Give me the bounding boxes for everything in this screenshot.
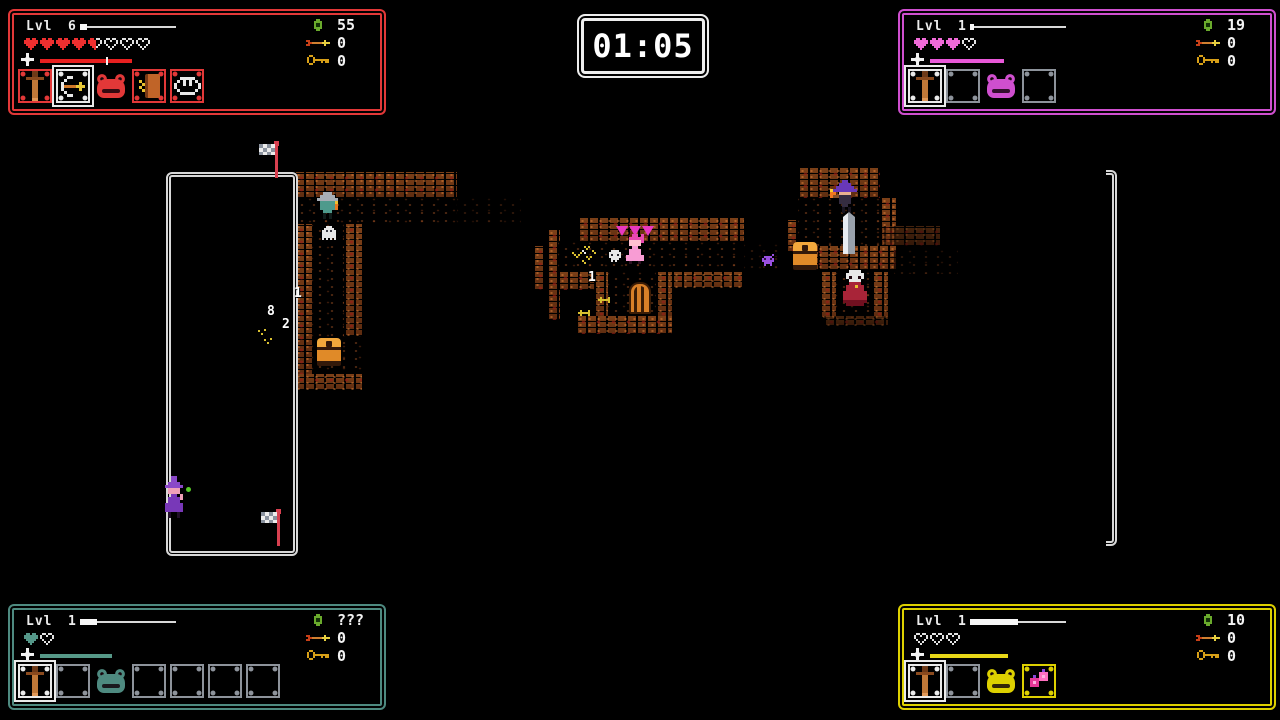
- fangs-icon: [174, 77, 201, 95]
- heart-full-icon: [56, 38, 70, 50]
- sprite-princess: [626, 234, 647, 264]
- special-bar: [40, 59, 132, 63]
- sprite-ghost: [322, 226, 336, 240]
- gem-icon: [1204, 614, 1212, 626]
- key-icon: [1197, 55, 1219, 67]
- inventory-slot[interactable]: [18, 664, 52, 698]
- game-viewport: 1821 01:05 Lvl65500 Lvl11900 Lvl1???00 L…: [0, 0, 1280, 720]
- xp-bar-fill: [80, 619, 97, 625]
- health-hearts: [24, 633, 56, 645]
- counter-value: 10: [1227, 611, 1245, 629]
- slime-icon: [96, 74, 126, 98]
- counter-value: 19: [1227, 16, 1245, 34]
- player-panel-yellow: Lvl11000: [898, 604, 1276, 710]
- level-label: Lvl: [26, 19, 52, 34]
- counter-value: ???: [337, 611, 364, 629]
- inventory-slot[interactable]: [18, 69, 52, 103]
- arrowitem-icon: [306, 38, 330, 48]
- counter-gems: ???: [304, 611, 380, 629]
- sprite-chest: [317, 338, 341, 366]
- level-value: 6: [68, 19, 76, 34]
- bow-icon: [61, 76, 85, 97]
- health-hearts: [24, 38, 152, 50]
- gem-icon-box: [1194, 19, 1222, 31]
- xp-bar-fill: [80, 24, 87, 30]
- inventory-slots: [18, 664, 280, 698]
- slime-icon: [986, 74, 1016, 98]
- player-panel-pink: Lvl11900: [898, 9, 1276, 115]
- level-label: Lvl: [26, 614, 52, 629]
- companion-slot: [984, 69, 1018, 103]
- gem-icon: [1204, 19, 1212, 31]
- map-tile-brick: [344, 224, 362, 336]
- map-tile-brick2: [824, 316, 888, 326]
- heart-full-icon: [72, 38, 86, 50]
- arrowitem-icon: [1196, 633, 1220, 643]
- berries-icon: [1027, 669, 1051, 693]
- key-icon: [307, 650, 329, 662]
- heart-empty-icon: [120, 38, 134, 50]
- heart-empty-icon: [104, 38, 118, 50]
- key-icon-box: [304, 650, 332, 662]
- arrowitem-icon-box: [304, 633, 332, 643]
- heart-empty-icon: [962, 38, 976, 50]
- gem-icon: [314, 614, 322, 626]
- damage-number: 1: [294, 286, 302, 301]
- heart-empty-icon: [914, 633, 928, 645]
- arrowitem-icon-box: [1194, 38, 1222, 48]
- companion-slot: [94, 664, 128, 698]
- map-tile-brick: [820, 272, 836, 318]
- map-tile-brick: [578, 218, 744, 242]
- sprite-bigsword: [843, 212, 855, 254]
- xp-bar: [970, 618, 1066, 626]
- counter-keys: 0: [304, 647, 380, 665]
- sprite-chest: [793, 242, 817, 270]
- level-value: 1: [958, 19, 966, 34]
- key-icon: [1197, 650, 1219, 662]
- inventory-slot[interactable]: [132, 69, 166, 103]
- map-tile-brick: [872, 272, 888, 318]
- slime-icon: [986, 669, 1016, 693]
- map-tile-brick2: [884, 226, 940, 246]
- inventory-slot[interactable]: [170, 69, 204, 103]
- counter-value: 0: [1227, 647, 1236, 665]
- sprite-witchfire: [830, 180, 860, 213]
- heart-full-icon: [946, 38, 960, 50]
- sprite-door: [629, 282, 651, 314]
- counter-keys: 0: [1194, 52, 1270, 70]
- inventory-slots: [908, 69, 1056, 103]
- counter-value: 0: [337, 34, 346, 52]
- sprite-priest: [843, 270, 867, 306]
- map-tile-floor2: [457, 198, 521, 224]
- map-tile-brick: [294, 374, 362, 390]
- sprite-witchroom: [162, 476, 186, 518]
- key-icon-box: [1194, 55, 1222, 67]
- arrowitem-icon-box: [1194, 633, 1222, 643]
- key-icon-box: [304, 55, 332, 67]
- resource-counters: 1900: [1194, 16, 1270, 70]
- inventory-slot[interactable]: [1022, 69, 1056, 103]
- counter-value: 0: [1227, 52, 1236, 70]
- sword-icon: [23, 71, 47, 101]
- health-hearts: [914, 633, 962, 645]
- gem-icon-box: [304, 19, 332, 31]
- heart-empty-icon: [930, 633, 944, 645]
- counter-value: 0: [337, 647, 346, 665]
- key-icon: [307, 55, 329, 67]
- map-tile-brick: [533, 246, 544, 290]
- heart-full-icon: [930, 38, 944, 50]
- heart-half-icon: [88, 38, 102, 50]
- inventory-slot[interactable]: [170, 664, 204, 698]
- inventory-slot[interactable]: [56, 69, 90, 103]
- right-room-wall: [1106, 170, 1117, 546]
- level-value: 1: [68, 614, 76, 629]
- damage-number: 1: [588, 270, 596, 285]
- special-bar: [40, 654, 112, 658]
- damage-number: 8: [267, 304, 275, 319]
- sword-icon: [913, 71, 937, 101]
- gem-icon: [314, 19, 322, 31]
- companion-slot: [94, 69, 128, 103]
- counter-value: 0: [337, 629, 346, 647]
- map-tile-floor2: [894, 250, 958, 274]
- player-panel-teal: Lvl1???00: [8, 604, 386, 710]
- sprite-spark: [264, 339, 266, 341]
- arrowitem-icon: [306, 633, 330, 643]
- slime-icon: [96, 669, 126, 693]
- counter-value: 0: [337, 52, 346, 70]
- counter-value: 0: [1227, 34, 1236, 52]
- counter-value: 55: [337, 16, 355, 34]
- sparkle-icon: [21, 53, 34, 66]
- heart-empty-icon: [40, 633, 54, 645]
- map-tile-brick: [656, 272, 672, 318]
- heart-full-icon: [24, 38, 38, 50]
- counter-gems: 10: [1194, 611, 1270, 629]
- gem-icon-box: [1194, 614, 1222, 626]
- counter-gems: 19: [1194, 16, 1270, 34]
- heart-full-icon: [40, 38, 54, 50]
- level-label: Lvl: [916, 614, 942, 629]
- xp-bar: [80, 618, 176, 626]
- inventory-slot[interactable]: [946, 664, 980, 698]
- book-icon: [139, 74, 160, 98]
- xp-bar-fill: [970, 619, 1018, 625]
- sprite-imp: [762, 254, 774, 266]
- timer-value: 01:05: [592, 27, 693, 65]
- health-hearts: [914, 38, 978, 50]
- xp-bar-track: [80, 26, 176, 28]
- companion-slot: [984, 664, 1018, 698]
- counter-arrows: 0: [1194, 34, 1270, 52]
- heart-empty-icon: [136, 38, 150, 50]
- map-tile-brick: [672, 272, 744, 288]
- xp-bar: [80, 23, 176, 31]
- counter-arrows: 0: [304, 34, 380, 52]
- counter-keys: 0: [1194, 647, 1270, 665]
- inventory-slot[interactable]: [1022, 664, 1056, 698]
- sprite-skull: [609, 250, 621, 262]
- resource-counters: 5500: [304, 16, 380, 70]
- heart-full-icon: [24, 633, 38, 645]
- sprite-flag: [277, 510, 280, 546]
- arrowitem-icon: [1196, 38, 1220, 48]
- inventory-slot[interactable]: [56, 664, 90, 698]
- xp-bar-fill: [970, 24, 974, 30]
- special-bar: [930, 654, 1008, 658]
- counter-arrows: 0: [1194, 629, 1270, 647]
- xp-bar-track: [970, 26, 1066, 28]
- counter-keys: 0: [304, 52, 380, 70]
- xp-bar: [970, 23, 1066, 31]
- inventory-slot[interactable]: [908, 69, 942, 103]
- resource-counters: ???00: [304, 611, 380, 665]
- match-timer: 01:05: [577, 14, 709, 78]
- inventory-slots: [908, 664, 1056, 698]
- inventory-slot[interactable]: [132, 664, 166, 698]
- inventory-slot[interactable]: [208, 664, 242, 698]
- sprite-dotgreen: [186, 487, 191, 492]
- counter-gems: 55: [304, 16, 380, 34]
- damage-number: 2: [282, 317, 290, 332]
- counter-value: 0: [1227, 629, 1236, 647]
- heart-full-icon: [914, 38, 928, 50]
- sprite-spark: [258, 330, 260, 332]
- sprite-arrowleft: [598, 295, 610, 305]
- sparkle-icon: [21, 648, 34, 661]
- player-panel-red: Lvl65500: [8, 9, 386, 115]
- sparkle-icon: [911, 53, 924, 66]
- arrowitem-icon-box: [304, 38, 332, 48]
- counter-arrows: 0: [304, 629, 380, 647]
- inventory-slot[interactable]: [246, 664, 280, 698]
- sprite-flag: [275, 142, 278, 178]
- sword-icon: [23, 666, 47, 696]
- special-bar: [930, 59, 1004, 63]
- gem-icon-box: [304, 614, 332, 626]
- sprite-bones: [572, 246, 596, 264]
- inventory-slots: [18, 69, 204, 103]
- sparkle-icon: [911, 648, 924, 661]
- sword-icon: [913, 666, 937, 696]
- inventory-slot[interactable]: [908, 664, 942, 698]
- map-tile-brick: [576, 316, 672, 334]
- key-icon-box: [1194, 650, 1222, 662]
- sprite-arrowleft: [578, 308, 590, 318]
- heart-empty-icon: [946, 633, 960, 645]
- level-value: 1: [958, 614, 966, 629]
- level-label: Lvl: [916, 19, 942, 34]
- resource-counters: 1000: [1194, 611, 1270, 665]
- sprite-gnome: [317, 192, 338, 219]
- inventory-slot[interactable]: [946, 69, 980, 103]
- special-bar-tick: [106, 57, 108, 65]
